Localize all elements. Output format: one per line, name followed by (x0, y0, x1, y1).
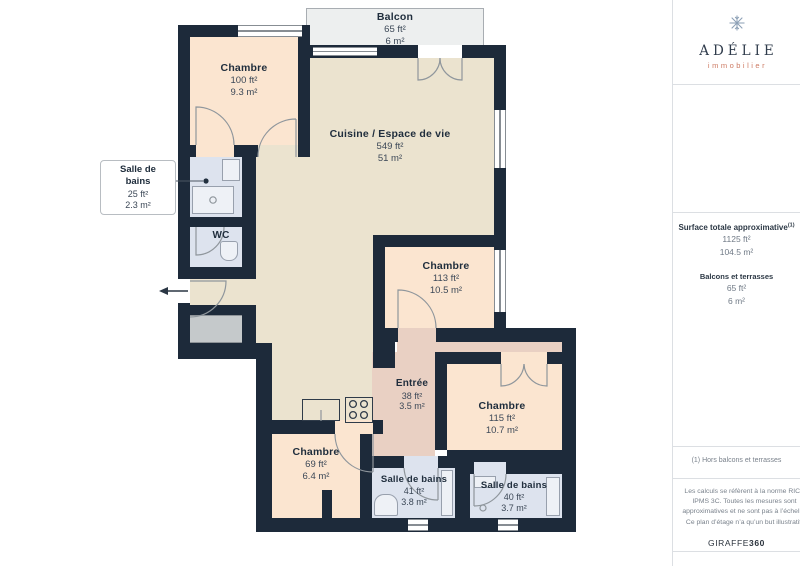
balconies-title: Balcons et terrasses (673, 271, 800, 282)
room-area-ft: 69 ft² (293, 459, 340, 471)
room-label-chambre-3: Chambre 115 ft² 10.7 m² (479, 400, 526, 436)
surface-summary: Surface totale approximative(1) 1125 ft²… (673, 222, 800, 308)
divider (673, 84, 800, 85)
room-area-m: 6.4 m² (293, 471, 340, 483)
room-name: Salle de bains (107, 164, 169, 189)
room-area-m: 3.5 m² (396, 401, 428, 412)
divider (673, 446, 800, 447)
room-area-ft: 41 ft² (381, 486, 447, 497)
room-area-m: 51 m² (330, 153, 451, 165)
footnote: (1) Hors balcons et terrasses (673, 457, 800, 464)
room-area-ft: 25 ft² (107, 189, 169, 200)
leader-dot-icon (203, 178, 208, 183)
room-name: Chambre (293, 446, 340, 459)
room-name: Chambre (479, 400, 526, 413)
room-area-ft: 549 ft² (330, 141, 451, 153)
room-area-m: 9.3 m² (221, 87, 268, 99)
room-label-entree: Entrée 38 ft² 3.5 m² (396, 378, 428, 412)
surface-title-text: Surface totale approximative (678, 223, 787, 232)
door-arc (258, 119, 296, 157)
disclaimer: Les calculs se réfèrent à la norme RICS … (673, 487, 800, 528)
room-label-salle-de-bains-1: Salle de bains 25 ft² 2.3 m² (100, 160, 176, 215)
floorplan-page: Balcon 65 ft² 6 m² Chambre 100 ft² 9.3 m… (0, 0, 800, 566)
door-arc (335, 434, 373, 472)
balconies-m: 6 m² (673, 295, 800, 308)
door-arc (524, 364, 547, 386)
burner (350, 412, 357, 419)
floorplan: Balcon 65 ft² 6 m² Chambre 100 ft² 9.3 m… (0, 0, 672, 566)
brand-name: ADÉLIE (673, 43, 800, 59)
divider (673, 212, 800, 213)
room-area-m: 3.7 m² (481, 503, 547, 514)
giraffe360-suffix: 360 (749, 538, 765, 548)
info-sidebar: ADÉLIE immobilier Surface totale approxi… (672, 0, 800, 566)
room-area-ft: 115 ft² (479, 413, 526, 425)
door-arc (418, 58, 440, 80)
room-name: Entrée (396, 378, 428, 391)
snowflake-icon (728, 14, 746, 32)
giraffe360-logo: GIRAFFE360 (673, 538, 800, 548)
room-name: Cuisine / Espace de vie (330, 128, 451, 141)
divider (673, 478, 800, 479)
room-area-m: 3.8 m² (381, 497, 447, 508)
surface-title: Surface totale approximative(1) (673, 222, 800, 233)
room-label-chambre-4: Chambre 69 ft² 6.4 m² (293, 446, 340, 482)
room-label-cuisine: Cuisine / Espace de vie 549 ft² 51 m² (330, 128, 451, 164)
room-label-chambre-2: Chambre 113 ft² 10.5 m² (423, 260, 470, 296)
surface-total-m: 104.5 m² (673, 246, 800, 259)
room-area-m: 2.3 m² (107, 200, 169, 211)
divider (673, 551, 800, 552)
callout-leader (174, 178, 209, 183)
room-area-m: 10.5 m² (423, 285, 470, 297)
room-name: Balcon (377, 11, 413, 24)
room-label-balcon: Balcon 65 ft² 6 m² (377, 11, 413, 47)
room-area-ft: 113 ft² (423, 273, 470, 285)
room-label-salle-de-bains-3: Salle de bains 40 ft² 3.7 m² (481, 480, 547, 514)
room-label-salle-de-bains-2: Salle de bains 41 ft² 3.8 m² (381, 474, 447, 508)
burner (361, 412, 368, 419)
door-arc (440, 58, 462, 80)
room-area-m: 10.7 m² (479, 425, 526, 437)
balconies-ft: 65 ft² (673, 282, 800, 295)
room-area-m: 6 m² (377, 36, 413, 48)
room-name: Chambre (423, 260, 470, 273)
faucet (210, 197, 216, 203)
giraffe360-brand: GIRAFFE (708, 538, 749, 548)
door-arc (190, 281, 226, 317)
room-name: Chambre (221, 62, 268, 75)
room-area-ft: 38 ft² (396, 391, 428, 402)
burner (361, 401, 368, 408)
brand-tagline: immobilier (673, 61, 800, 70)
brand-block: ADÉLIE immobilier (673, 14, 800, 70)
room-label-chambre-1: Chambre 100 ft² 9.3 m² (221, 62, 268, 98)
room-name: Salle de bains (481, 480, 547, 492)
burner (350, 401, 357, 408)
room-label-wc: WC (212, 230, 229, 243)
entry-arrow-icon (159, 287, 188, 295)
room-area-ft: 40 ft² (481, 492, 547, 503)
room-name: Salle de bains (381, 474, 447, 486)
room-name: WC (212, 230, 229, 243)
surface-total-ft: 1125 ft² (673, 233, 800, 246)
surface-title-sup: (1) (788, 222, 795, 228)
door-arc (501, 364, 524, 386)
room-area-ft: 65 ft² (377, 24, 413, 36)
door-arc (196, 107, 234, 145)
room-area-ft: 100 ft² (221, 75, 268, 87)
